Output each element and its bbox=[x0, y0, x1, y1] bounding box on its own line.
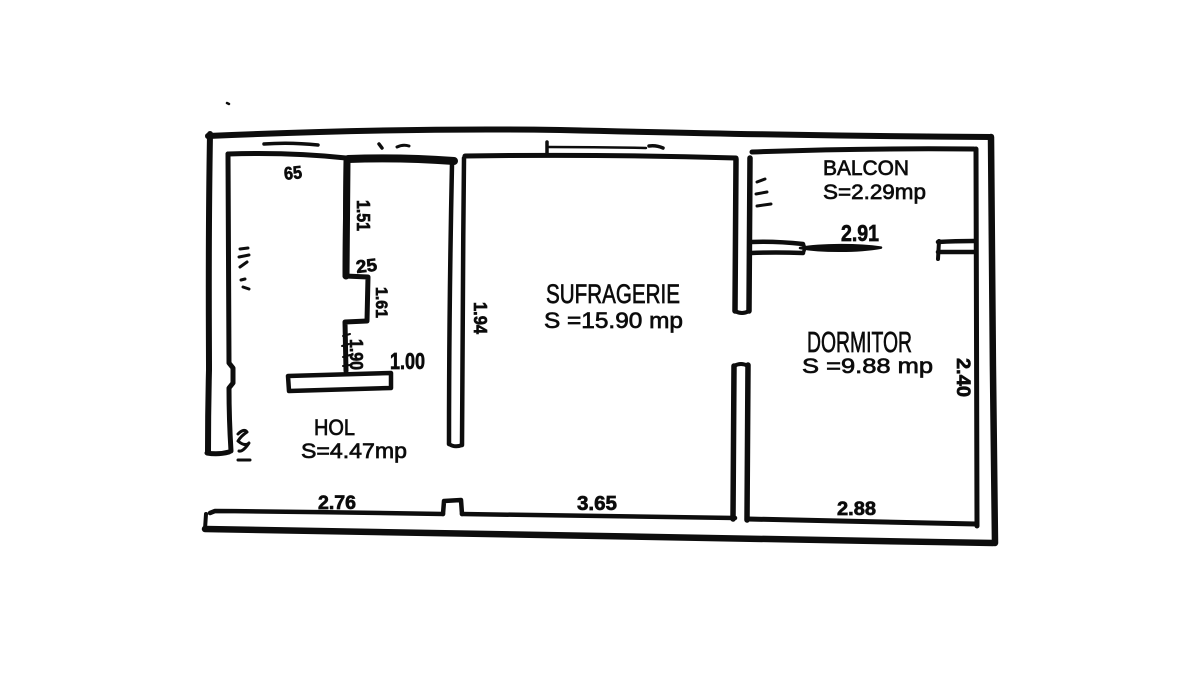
svg-text:S =9.88 mp: S =9.88 mp bbox=[802, 355, 933, 378]
svg-text:1.00: 1.00 bbox=[390, 348, 425, 374]
svg-text:S=2.29mp: S=2.29mp bbox=[823, 181, 926, 204]
svg-text:2.76: 2.76 bbox=[318, 493, 356, 514]
svg-text:1.61: 1.61 bbox=[372, 287, 391, 318]
svg-text:1.94: 1.94 bbox=[470, 302, 490, 334]
svg-text:2.91: 2.91 bbox=[841, 220, 879, 246]
svg-text:BALCON: BALCON bbox=[823, 157, 909, 180]
svg-text:HOL: HOL bbox=[314, 415, 355, 440]
svg-text:2.40: 2.40 bbox=[952, 358, 973, 397]
svg-text:65: 65 bbox=[283, 162, 303, 184]
svg-text:1.90: 1.90 bbox=[346, 339, 366, 370]
svg-text:25: 25 bbox=[355, 255, 378, 277]
svg-text:SUFRAGERIE: SUFRAGERIE bbox=[546, 279, 680, 309]
svg-text:S =15.90 mp: S =15.90 mp bbox=[544, 308, 683, 333]
svg-text:2.88: 2.88 bbox=[837, 499, 876, 520]
svg-text:1.51: 1.51 bbox=[353, 200, 373, 231]
svg-text:3.65: 3.65 bbox=[577, 493, 617, 515]
svg-text:S=4.47mp: S=4.47mp bbox=[301, 440, 407, 463]
